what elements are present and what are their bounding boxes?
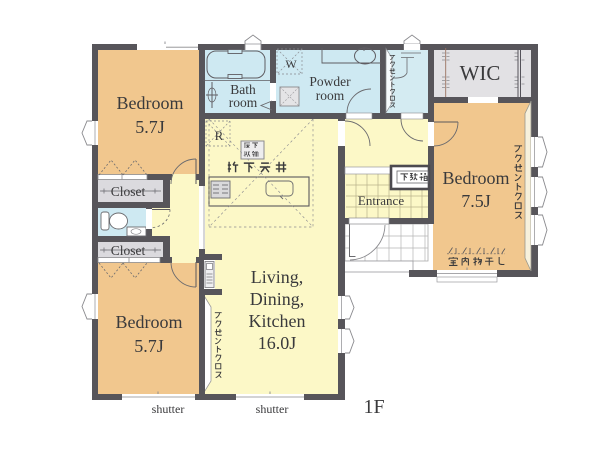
svg-text:Closet: Closet bbox=[111, 184, 146, 199]
svg-text:5.7J: 5.7J bbox=[134, 336, 164, 356]
svg-text:Bedroom: Bedroom bbox=[116, 312, 183, 332]
svg-text:WIC: WIC bbox=[460, 61, 501, 85]
svg-text:Entrance: Entrance bbox=[358, 193, 404, 208]
svg-text:room: room bbox=[229, 95, 258, 110]
svg-text:Closet: Closet bbox=[111, 243, 146, 258]
svg-text:Bedroom: Bedroom bbox=[443, 168, 510, 188]
svg-text:Kitchen: Kitchen bbox=[249, 311, 306, 331]
svg-text:room: room bbox=[316, 88, 345, 103]
svg-text:Living,: Living, bbox=[251, 267, 304, 287]
svg-text:1F: 1F bbox=[363, 396, 384, 418]
svg-text:shutter: shutter bbox=[256, 402, 289, 416]
svg-text:Dining,: Dining, bbox=[250, 289, 305, 309]
svg-text:R: R bbox=[215, 128, 224, 143]
svg-text:Bedroom: Bedroom bbox=[117, 93, 184, 113]
svg-text:7.5J: 7.5J bbox=[461, 191, 491, 211]
svg-text:5.7J: 5.7J bbox=[135, 117, 165, 137]
svg-text:shutter: shutter bbox=[152, 402, 185, 416]
svg-text:W: W bbox=[285, 57, 297, 71]
svg-text:16.0J: 16.0J bbox=[258, 333, 297, 353]
svg-text:Powder: Powder bbox=[309, 74, 351, 89]
